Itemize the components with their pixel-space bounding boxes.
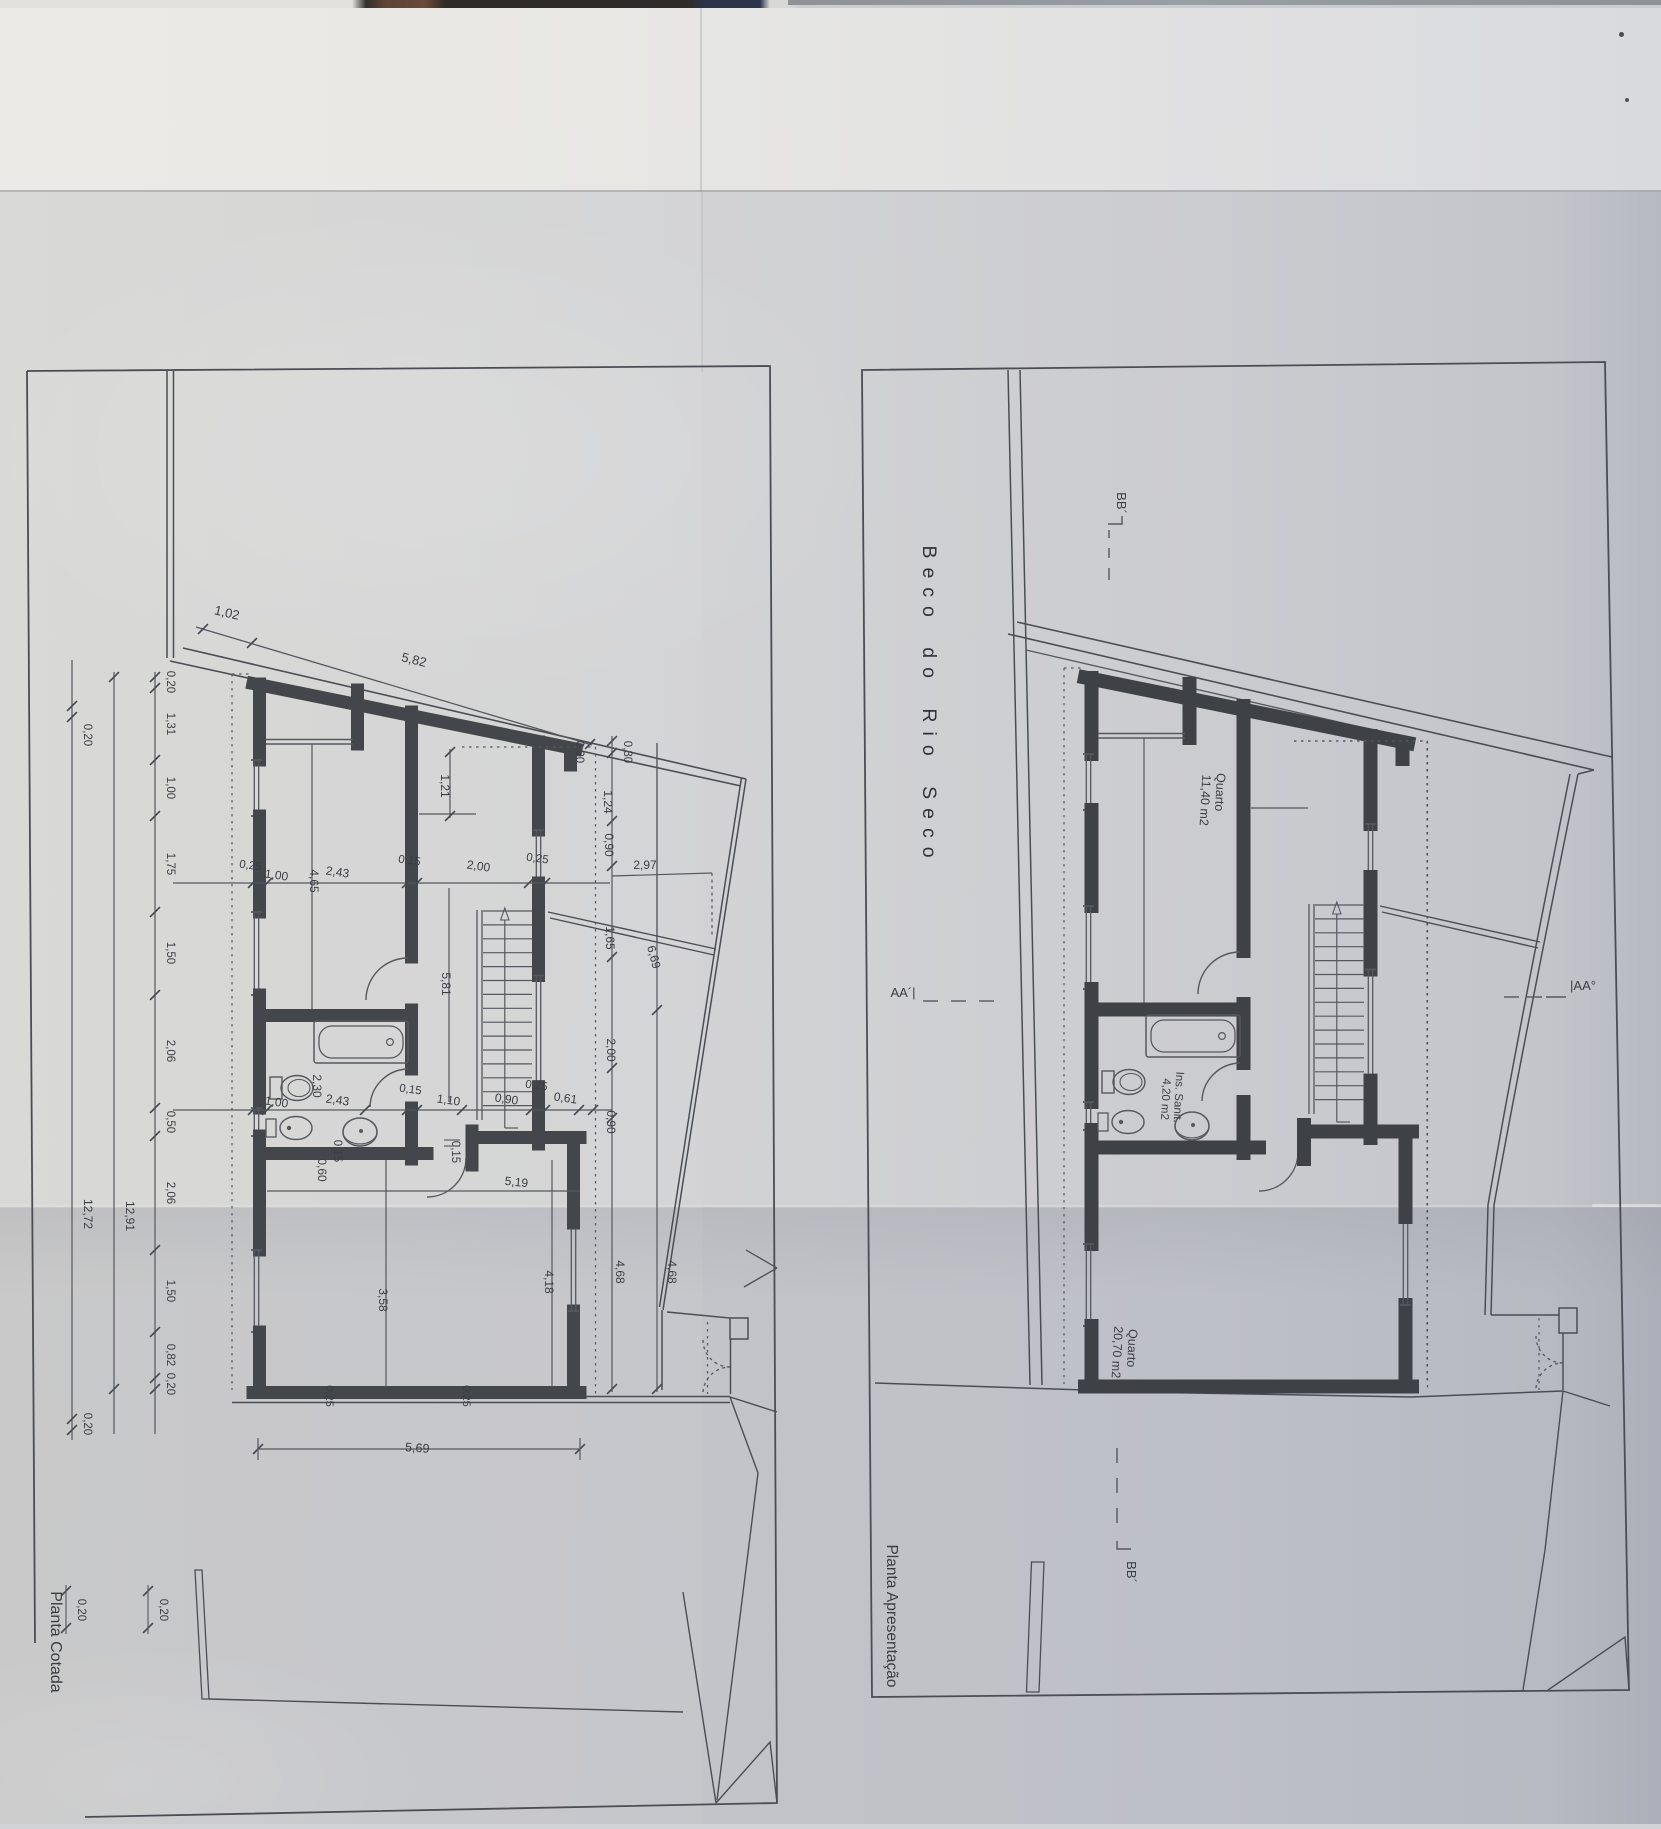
svg-text:1,10: 1,10 xyxy=(436,1091,461,1108)
svg-text:0,20: 0,20 xyxy=(157,1599,169,1621)
svg-text:1,75: 1,75 xyxy=(164,853,176,875)
svg-text:|AA°: |AA° xyxy=(1570,978,1596,993)
svg-text:4,65: 4,65 xyxy=(307,869,321,893)
svg-text:0,15: 0,15 xyxy=(449,1141,461,1163)
svg-text:BB´: BB´ xyxy=(1114,492,1129,514)
svg-text:0,15: 0,15 xyxy=(397,854,421,869)
svg-text:0,20: 0,20 xyxy=(164,671,176,693)
svg-text:4,68: 4,68 xyxy=(613,1260,627,1284)
svg-text:1,24: 1,24 xyxy=(601,790,615,814)
svg-text:5,69: 5,69 xyxy=(405,1440,430,1456)
svg-text:Planta Cotada: Planta Cotada xyxy=(47,1591,64,1693)
svg-text:0,50: 0,50 xyxy=(164,1111,176,1133)
svg-text:0,90: 0,90 xyxy=(604,1110,618,1134)
svg-text:2,00: 2,00 xyxy=(466,857,491,874)
svg-text:1,65: 1,65 xyxy=(603,926,617,950)
svg-text:0,25: 0,25 xyxy=(238,859,262,874)
svg-text:2,00: 2,00 xyxy=(604,1038,618,1062)
svg-text:2,06: 2,06 xyxy=(164,1182,176,1204)
svg-text:0,90: 0,90 xyxy=(602,833,616,857)
svg-text:1,50: 1,50 xyxy=(164,1280,176,1302)
svg-text:2,97: 2,97 xyxy=(633,858,657,872)
svg-text:5,19: 5,19 xyxy=(504,1174,529,1190)
svg-text:1,50: 1,50 xyxy=(164,942,176,964)
svg-text:Quarto: Quarto xyxy=(1212,773,1228,812)
svg-text:4,68: 4,68 xyxy=(665,1260,679,1284)
svg-text:3,58: 3,58 xyxy=(376,1288,390,1312)
svg-text:1,00: 1,00 xyxy=(164,777,176,799)
svg-text:4,20 m2: 4,20 m2 xyxy=(1158,1078,1172,1120)
svg-text:Planta Apresentação: Planta Apresentação xyxy=(883,1544,900,1687)
svg-text:0,15: 0,15 xyxy=(331,1140,343,1162)
svg-text:0,20: 0,20 xyxy=(75,1599,87,1621)
svg-text:0,60: 0,60 xyxy=(315,1158,329,1182)
svg-text:5,81: 5,81 xyxy=(439,972,453,996)
svg-text:12,91: 12,91 xyxy=(123,1201,137,1231)
svg-text:6,69: 6,69 xyxy=(644,944,664,970)
svg-text:0,30: 0,30 xyxy=(573,741,585,763)
svg-text:0,25: 0,25 xyxy=(460,1385,472,1406)
svg-text:0,82: 0,82 xyxy=(164,1344,176,1366)
svg-text:5,82: 5,82 xyxy=(400,649,428,670)
svg-text:12,72: 12,72 xyxy=(81,1199,95,1229)
svg-text:2,30: 2,30 xyxy=(310,1074,324,1098)
svg-text:2,43: 2,43 xyxy=(325,1091,350,1108)
svg-text:Quarto: Quarto xyxy=(1124,1329,1140,1368)
svg-text:0,20: 0,20 xyxy=(81,1413,93,1435)
svg-text:0,61: 0,61 xyxy=(553,1089,578,1106)
svg-text:AA´|: AA´| xyxy=(890,985,915,1000)
svg-text:BB´: BB´ xyxy=(1124,1561,1139,1583)
svg-text:0,25: 0,25 xyxy=(323,1385,335,1406)
svg-text:2,43: 2,43 xyxy=(325,863,350,880)
svg-text:20,70 m2: 20,70 m2 xyxy=(1109,1326,1126,1379)
svg-text:2,06: 2,06 xyxy=(164,1040,176,1062)
svg-text:0,30: 0,30 xyxy=(621,741,633,763)
svg-text:11,40 m2: 11,40 m2 xyxy=(1197,774,1214,826)
svg-text:1,21: 1,21 xyxy=(438,774,452,798)
svg-text:1,31: 1,31 xyxy=(164,713,176,735)
svg-text:1,02: 1,02 xyxy=(213,602,241,622)
svg-text:4,18: 4,18 xyxy=(542,1270,556,1294)
svg-text:0,15: 0,15 xyxy=(398,1083,422,1098)
svg-text:0,25: 0,25 xyxy=(525,852,549,867)
svg-text:0,20: 0,20 xyxy=(81,724,93,746)
svg-text:0,20: 0,20 xyxy=(164,1373,176,1395)
svg-text:Beco do Rio Seco: Beco do Rio Seco xyxy=(918,545,940,866)
